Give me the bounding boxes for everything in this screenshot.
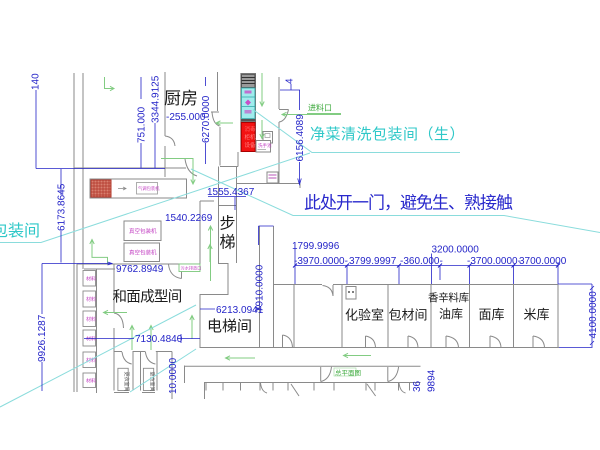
svg-text:和面成型间: 和面成型间 (113, 289, 182, 306)
svg-text:总平面图: 总平面图 (335, 368, 361, 377)
svg-text:梯: 梯 (220, 234, 236, 252)
svg-text:柜机: 柜机 (245, 133, 257, 141)
svg-text:9926.1287: 9926.1287 (37, 314, 48, 362)
svg-text:-3700.0000-: -3700.0000- (467, 256, 521, 267)
svg-text:此处开一门，避免生、熟接触: 此处开一门，避免生、熟接触 (304, 193, 513, 213)
svg-text:步: 步 (220, 215, 236, 233)
svg-text:真空包装机: 真空包装机 (129, 227, 157, 235)
svg-text:751.000: 751.000 (137, 106, 148, 143)
svg-text:1540.2269: 1540.2269 (165, 213, 213, 224)
svg-text:消毒: 消毒 (245, 125, 257, 133)
svg-text:面库: 面库 (479, 307, 505, 322)
svg-text:更衣室间: 更衣室间 (149, 372, 156, 392)
svg-text:设备: 设备 (245, 141, 257, 149)
svg-text:3799.9997: 3799.9997 (349, 256, 397, 267)
svg-text:9894: 9894 (427, 369, 438, 392)
svg-text:140: 140 (31, 73, 42, 90)
svg-text:3344.9125: 3344.9125 (151, 75, 162, 123)
svg-text:油库: 油库 (439, 306, 463, 321)
svg-text:7130.4840: 7130.4840 (135, 334, 183, 345)
svg-text:36: 36 (412, 380, 423, 392)
svg-text:-3970.0000-: -3970.0000- (294, 256, 348, 267)
svg-text:厨房: 厨房 (164, 89, 198, 108)
svg-text:材料: 材料 (86, 276, 96, 283)
svg-text:进料口: 进料口 (308, 103, 332, 113)
svg-text:-360.000-: -360.000- (400, 256, 443, 267)
svg-text:3200.0000: 3200.0000 (432, 245, 480, 256)
svg-text:10.0000: 10.0000 (168, 357, 179, 394)
svg-text:1555.4367: 1555.4367 (207, 187, 255, 198)
svg-text:电梯间: 电梯间 (207, 318, 252, 335)
svg-text:米库: 米库 (524, 307, 550, 322)
svg-text:香辛料库: 香辛料库 (428, 291, 469, 304)
svg-text:真空包装机: 真空包装机 (129, 249, 157, 257)
svg-text:污水排放口: 污水排放口 (181, 265, 202, 272)
svg-text:材料: 材料 (86, 316, 96, 323)
svg-text:9762.8949: 9762.8949 (116, 264, 164, 275)
svg-text:6173.8645: 6173.8645 (57, 183, 68, 231)
svg-text:材料: 材料 (86, 378, 96, 385)
svg-text:7910.0000: 7910.0000 (255, 264, 266, 312)
svg-text:材料: 材料 (86, 336, 96, 343)
svg-text:包装间: 包装间 (0, 222, 40, 240)
svg-text:更衣室间: 更衣室间 (123, 372, 130, 392)
svg-text:4: 4 (285, 78, 296, 84)
svg-text:净菜清洗包装间（生）: 净菜清洗包装间（生） (310, 126, 465, 143)
svg-text:3700.0000: 3700.0000 (519, 256, 567, 267)
svg-text:包材间: 包材间 (389, 308, 428, 323)
svg-text:6156.4089: 6156.4089 (295, 114, 306, 162)
svg-text:6270.0000: 6270.0000 (201, 95, 212, 143)
svg-text:材料: 材料 (86, 296, 96, 303)
svg-text:1799.9996: 1799.9996 (292, 241, 340, 252)
svg-text:4100.0000: 4100.0000 (588, 291, 599, 339)
svg-text:化验室: 化验室 (345, 308, 384, 323)
svg-text:洗手池: 洗手池 (258, 142, 272, 149)
svg-text:气调包装机: 气调包装机 (138, 185, 160, 192)
